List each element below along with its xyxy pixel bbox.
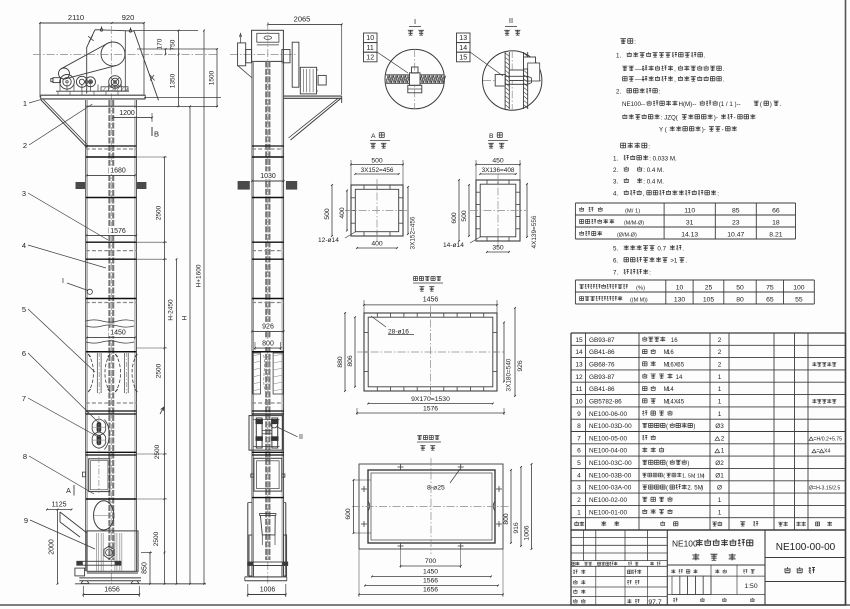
- svg-text:-: -: [734, 115, 736, 122]
- svg-text:: 0.033 M.: : 0.033 M.: [649, 156, 677, 163]
- svg-text:25: 25: [705, 285, 713, 292]
- svg-text:A: A: [371, 133, 377, 140]
- svg-text:9: 9: [24, 516, 28, 525]
- svg-text:65: 65: [766, 297, 774, 304]
- svg-text:12: 12: [575, 374, 583, 381]
- svg-text:11: 11: [576, 386, 583, 393]
- svg-text:3X136=408: 3X136=408: [482, 167, 515, 174]
- svg-text:7.: 7.: [613, 270, 620, 277]
- svg-text:806: 806: [347, 355, 354, 367]
- svg-text:2065: 2065: [294, 15, 311, 24]
- svg-text:1680: 1680: [110, 168, 126, 175]
- svg-text:(M/M-Ø): (M/M-Ø): [624, 221, 644, 227]
- svg-text:3: 3: [577, 485, 581, 492]
- svg-text:400: 400: [371, 241, 383, 248]
- svg-text:2: 2: [721, 435, 725, 442]
- svg-text:)-: )-: [702, 127, 706, 134]
- svg-text:2: 2: [23, 141, 27, 150]
- svg-text:1.: 1.: [616, 53, 623, 60]
- svg-text:13: 13: [575, 362, 583, 369]
- svg-text:.: .: [682, 246, 684, 253]
- svg-text:(Ø/M-Ø): (Ø/M-Ø): [617, 233, 637, 239]
- svg-text:GB5782-86: GB5782-86: [589, 399, 622, 406]
- svg-text:GB41-86: GB41-86: [589, 386, 615, 393]
- svg-text:NE100: NE100: [672, 539, 698, 549]
- svg-text:H: H: [182, 315, 189, 320]
- svg-text:6: 6: [577, 448, 581, 455]
- svg-text:11: 11: [367, 45, 374, 52]
- svg-text:8-ø25: 8-ø25: [427, 485, 445, 492]
- svg-text::: :: [648, 144, 650, 151]
- svg-text:1450: 1450: [423, 569, 438, 576]
- svg-text:5: 5: [577, 460, 581, 467]
- svg-text:15: 15: [575, 337, 583, 344]
- svg-text:1450: 1450: [110, 330, 126, 337]
- svg-text:>1: >1: [669, 258, 678, 265]
- svg-text:14-ø14: 14-ø14: [443, 242, 464, 249]
- svg-text:10: 10: [575, 399, 583, 406]
- svg-text:((M M)): ((M M)): [630, 298, 648, 304]
- svg-text:): ): [693, 424, 695, 430]
- svg-text::: :: [634, 39, 636, 46]
- svg-text:NE100-00-00: NE100-00-00: [776, 542, 836, 553]
- svg-text:97.7: 97.7: [648, 599, 661, 606]
- svg-text:10: 10: [366, 35, 374, 42]
- svg-text:A: A: [66, 488, 71, 495]
- svg-text:: JZQ(: : JZQ(: [661, 115, 679, 122]
- svg-text:X4: X4: [824, 449, 830, 455]
- svg-text:2: 2: [718, 362, 722, 369]
- svg-text:H+1600: H+1600: [196, 264, 203, 287]
- svg-text:1006: 1006: [260, 587, 276, 594]
- svg-text:2500: 2500: [154, 444, 161, 459]
- svg-text:50: 50: [736, 285, 744, 292]
- svg-text:.: .: [723, 66, 725, 73]
- svg-text:8: 8: [577, 423, 581, 430]
- svg-text:916: 916: [513, 522, 520, 534]
- svg-text:NE100-05-00: NE100-05-00: [589, 435, 627, 442]
- svg-text:110: 110: [684, 208, 695, 215]
- svg-text:Ø=H-3.15/2.5: Ø=H-3.15/2.5: [809, 486, 840, 492]
- svg-text:23: 23: [732, 220, 740, 227]
- svg-text:NE100-03B-00: NE100-03B-00: [589, 472, 632, 479]
- svg-text:500: 500: [371, 158, 383, 165]
- svg-text:2110: 2110: [68, 13, 84, 22]
- svg-text::: :: [717, 191, 719, 198]
- svg-text:,: ,: [674, 66, 676, 73]
- svg-text:2500: 2500: [156, 205, 163, 220]
- svg-text:,: ,: [694, 473, 695, 479]
- svg-text:1006: 1006: [524, 525, 531, 540]
- svg-text:75: 75: [766, 285, 774, 292]
- svg-text:85: 85: [732, 208, 740, 215]
- svg-text:Ø2: Ø2: [715, 460, 724, 467]
- svg-text:450: 450: [492, 158, 504, 165]
- svg-text:1: 1: [718, 509, 722, 516]
- svg-text:2: 2: [577, 497, 581, 504]
- svg-text:14: 14: [459, 45, 467, 52]
- svg-text:100: 100: [793, 285, 805, 292]
- svg-text:-: -: [722, 127, 724, 134]
- svg-text:14.13: 14.13: [681, 232, 698, 239]
- svg-text:3X152=456: 3X152=456: [410, 216, 417, 249]
- svg-text:4.: 4.: [613, 191, 620, 198]
- svg-text:Ø3: Ø3: [715, 423, 724, 430]
- svg-text:55: 55: [795, 297, 803, 304]
- svg-text:2500: 2500: [156, 363, 163, 378]
- svg-text:): ): [687, 461, 689, 467]
- svg-text:5.: 5.: [613, 246, 620, 253]
- svg-text:I: I: [62, 278, 64, 285]
- svg-text:(%): (%): [636, 286, 645, 292]
- svg-text:(M/ 1): (M/ 1): [625, 209, 640, 215]
- svg-text:1350: 1350: [170, 73, 177, 88]
- svg-text:1: 1: [718, 399, 722, 406]
- svg-text:9X170=1530: 9X170=1530: [411, 396, 450, 403]
- svg-text:700: 700: [425, 558, 437, 565]
- svg-text:=: =: [817, 449, 820, 455]
- svg-text:6.: 6.: [613, 258, 620, 265]
- svg-text:1656: 1656: [104, 587, 120, 594]
- svg-text:2: 2: [718, 349, 722, 356]
- svg-text:600: 600: [345, 508, 352, 520]
- svg-text:GB68-76: GB68-76: [589, 362, 615, 369]
- svg-text:1576: 1576: [423, 406, 438, 413]
- svg-text:NE100-03D-00: NE100-03D-00: [589, 423, 632, 430]
- svg-text:4: 4: [577, 472, 581, 479]
- svg-text:12-ø14: 12-ø14: [318, 237, 339, 244]
- svg-text:7: 7: [577, 435, 581, 442]
- svg-text:2.: 2.: [613, 167, 620, 174]
- svg-text:.: .: [685, 258, 687, 265]
- svg-text:: 0.4 M.: : 0.4 M.: [643, 167, 664, 174]
- svg-text:2500: 2500: [153, 531, 160, 546]
- svg-text:5: 5: [22, 305, 26, 314]
- svg-text:130: 130: [674, 297, 686, 304]
- svg-text:Ø: Ø: [717, 485, 722, 492]
- svg-text:66: 66: [772, 208, 780, 215]
- svg-text:GB93-87: GB93-87: [589, 337, 615, 344]
- svg-text:4X139=556: 4X139=556: [531, 215, 538, 248]
- svg-text:4: 4: [22, 241, 26, 250]
- svg-text:1: 1: [718, 497, 722, 504]
- svg-text:3X152=456: 3X152=456: [361, 167, 394, 174]
- svg-text:1: 1: [718, 411, 722, 418]
- svg-text:31: 31: [686, 220, 694, 227]
- svg-text:800: 800: [503, 513, 510, 525]
- svg-text:): ): [703, 473, 705, 479]
- svg-text:15: 15: [459, 54, 467, 61]
- svg-text:=H/0.2+5.75: =H/0.2+5.75: [814, 436, 843, 442]
- svg-text:NE100-06-00: NE100-06-00: [589, 411, 627, 418]
- svg-text:8: 8: [23, 452, 27, 461]
- svg-text:1576: 1576: [110, 228, 126, 235]
- svg-text:B: B: [154, 130, 159, 139]
- svg-text:1566: 1566: [423, 578, 438, 585]
- svg-text:1200: 1200: [119, 110, 135, 117]
- svg-text:7: 7: [22, 394, 26, 403]
- svg-text:12: 12: [366, 54, 374, 61]
- svg-text:NE100--: NE100--: [622, 101, 645, 108]
- svg-text:2.: 2.: [616, 89, 623, 96]
- svg-text:9: 9: [577, 411, 581, 418]
- svg-text:500: 500: [324, 208, 331, 220]
- svg-text:2000: 2000: [49, 539, 56, 555]
- svg-text:1: 1: [23, 99, 27, 108]
- svg-text:II: II: [509, 16, 513, 25]
- svg-text:Y (: Y (: [659, 127, 668, 134]
- svg-text:.: .: [780, 101, 782, 108]
- svg-text:1125: 1125: [51, 502, 66, 509]
- svg-text:): ): [770, 101, 772, 108]
- svg-text:1: 1: [721, 448, 725, 455]
- svg-text:8.21: 8.21: [769, 232, 782, 239]
- svg-text:NE100-04-00: NE100-04-00: [589, 448, 627, 455]
- svg-text::: :: [649, 270, 651, 277]
- svg-text:3: 3: [22, 189, 26, 198]
- svg-text:1: 1: [718, 386, 722, 393]
- svg-text:,: ,: [674, 77, 676, 84]
- svg-text:: 0.4 M.: : 0.4 M.: [643, 179, 664, 186]
- svg-text:): ): [701, 486, 703, 492]
- svg-text:880: 880: [337, 356, 344, 368]
- svg-text:.: .: [685, 473, 686, 479]
- svg-text:1030: 1030: [260, 173, 276, 180]
- svg-text:.: .: [704, 53, 706, 60]
- svg-text:.: .: [723, 77, 725, 84]
- svg-text:Ø1: Ø1: [715, 472, 724, 479]
- svg-text:1: 1: [718, 374, 722, 381]
- svg-text:105: 105: [703, 297, 715, 304]
- svg-text:0.7: 0.7: [656, 246, 667, 253]
- svg-text:GB93-87: GB93-87: [589, 374, 615, 381]
- svg-text:NE100-03C-00: NE100-03C-00: [589, 460, 632, 467]
- svg-text:3X180=540: 3X180=540: [506, 358, 513, 391]
- svg-text:(: (: [666, 486, 668, 492]
- svg-text:1656: 1656: [423, 587, 438, 594]
- svg-text:1456: 1456: [423, 297, 439, 304]
- svg-text:,: ,: [643, 191, 645, 198]
- svg-text:NE100-01-00: NE100-01-00: [589, 509, 627, 516]
- svg-text:(: (: [666, 461, 668, 467]
- svg-text:80: 80: [736, 297, 744, 304]
- svg-text:GB41-86: GB41-86: [589, 349, 615, 356]
- svg-text:14: 14: [575, 349, 583, 356]
- svg-text:6: 6: [22, 349, 26, 358]
- svg-text:)-: )-: [714, 115, 718, 122]
- svg-text:850: 850: [142, 562, 149, 574]
- svg-text:926: 926: [517, 360, 524, 372]
- svg-text:800: 800: [262, 341, 274, 348]
- svg-text:(1 / 1 )--: (1 / 1 )--: [719, 101, 741, 108]
- svg-text:170: 170: [157, 38, 164, 49]
- svg-text:1500: 1500: [209, 70, 216, 85]
- svg-text:600: 600: [451, 212, 458, 224]
- svg-text:3.: 3.: [613, 179, 620, 186]
- svg-text:13: 13: [459, 35, 467, 42]
- svg-text:1:50: 1:50: [744, 583, 757, 590]
- svg-text:350: 350: [492, 245, 504, 252]
- svg-text:500: 500: [461, 210, 468, 222]
- svg-text:400: 400: [339, 207, 346, 219]
- svg-text:B: B: [489, 133, 495, 140]
- svg-text:NE100-03A-00: NE100-03A-00: [589, 485, 632, 492]
- svg-text:18: 18: [772, 220, 780, 227]
- svg-text:H(M)--: H(M)--: [679, 101, 697, 108]
- svg-text:750: 750: [170, 39, 177, 50]
- svg-text:(: (: [663, 473, 665, 479]
- svg-text:NE100-02-00: NE100-02-00: [589, 497, 627, 504]
- svg-text:I: I: [414, 17, 416, 26]
- svg-text:926: 926: [262, 324, 274, 331]
- svg-text::: :: [659, 89, 661, 96]
- svg-text:10.47: 10.47: [727, 232, 744, 239]
- svg-text:2: 2: [718, 337, 722, 344]
- svg-text:(: (: [666, 424, 668, 430]
- svg-text:10: 10: [676, 285, 684, 292]
- svg-text:920: 920: [122, 13, 135, 22]
- svg-text:1.: 1.: [613, 156, 620, 163]
- svg-text:II: II: [299, 434, 303, 441]
- svg-text:1: 1: [577, 509, 581, 516]
- svg-text:H-2450: H-2450: [168, 299, 175, 321]
